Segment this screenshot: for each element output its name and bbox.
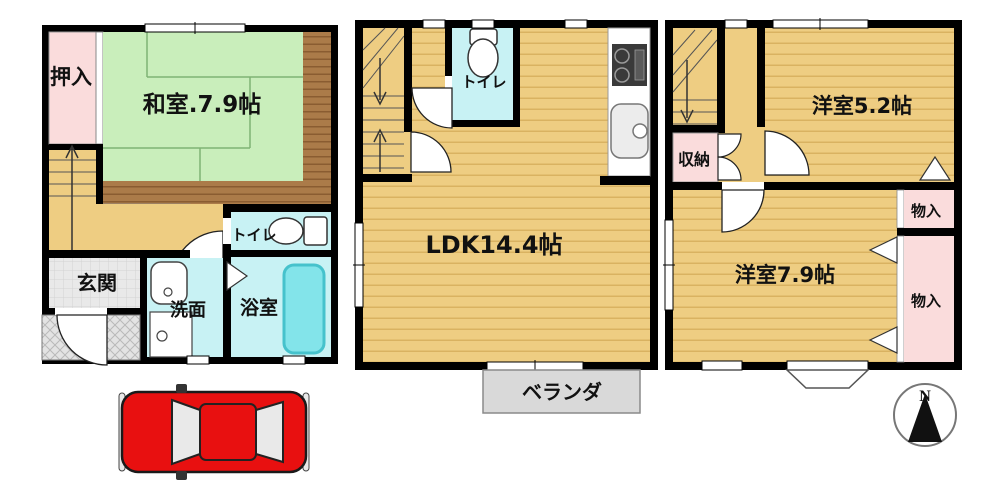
f2-kitchen bbox=[600, 28, 650, 185]
room-label-western52: 洋室5.2帖 bbox=[812, 94, 912, 118]
room-label-genkan: 玄関 bbox=[77, 271, 117, 295]
room-label-senmen: 洗面 bbox=[170, 299, 206, 321]
room-label-oshiire: 押入 bbox=[50, 65, 92, 89]
room-label-monoire-top: 物入 bbox=[911, 202, 941, 220]
toilet-bowl-icon bbox=[468, 39, 498, 77]
floor-2-plan: トイレ LDK14.4帖 ベランダ bbox=[353, 20, 658, 413]
f1-toilet-door-gap bbox=[223, 218, 231, 244]
car-top-view bbox=[119, 384, 309, 480]
car-windshield bbox=[172, 400, 200, 464]
f1-fusuma-door bbox=[96, 32, 103, 144]
f1-wood-strip-bottom bbox=[103, 181, 331, 204]
room-label-f2-toilet: トイレ bbox=[461, 73, 506, 91]
compass: N bbox=[894, 384, 956, 446]
room-label-bath: 浴室 bbox=[240, 296, 278, 319]
bathtub-icon bbox=[284, 265, 324, 353]
monoire-top-door bbox=[897, 190, 904, 228]
floor-1-plan: 押入 和室.7.9帖 トイレ 玄関 洗面 浴室 bbox=[42, 22, 338, 365]
room-label-monoire-bottom: 物入 bbox=[911, 292, 941, 310]
room-label-washitsu: 和室.7.9帖 bbox=[143, 91, 261, 118]
car-mirror bbox=[176, 471, 187, 480]
monoire-bottom-door bbox=[897, 236, 904, 362]
car-rear-window bbox=[256, 402, 283, 462]
room-label-f1-toilet: トイレ bbox=[231, 226, 276, 244]
room-label-western79: 洋室7.9帖 bbox=[735, 263, 835, 287]
toilet-tank-icon bbox=[304, 217, 327, 245]
room-label-storage: 収納 bbox=[678, 150, 710, 169]
floorplan-svg: 押入 和室.7.9帖 トイレ 玄関 洗面 浴室 bbox=[0, 0, 1000, 500]
floor-3-plan: 収納 洋室5.2帖 物入 洋室7.9帖 物入 bbox=[663, 18, 962, 388]
room-label-ldk: LDK14.4帖 bbox=[425, 231, 562, 259]
floorplan-canvas: 押入 和室.7.9帖 トイレ 玄関 洗面 浴室 bbox=[0, 0, 1000, 500]
washbasin-icon bbox=[151, 262, 187, 304]
room-label-veranda: ベランダ bbox=[522, 380, 602, 404]
f1-wood-strip-right bbox=[303, 32, 331, 181]
car-mirror bbox=[176, 384, 187, 393]
car-roof bbox=[200, 404, 256, 460]
bay-window bbox=[787, 370, 868, 388]
compass-north-label: N bbox=[919, 388, 931, 405]
